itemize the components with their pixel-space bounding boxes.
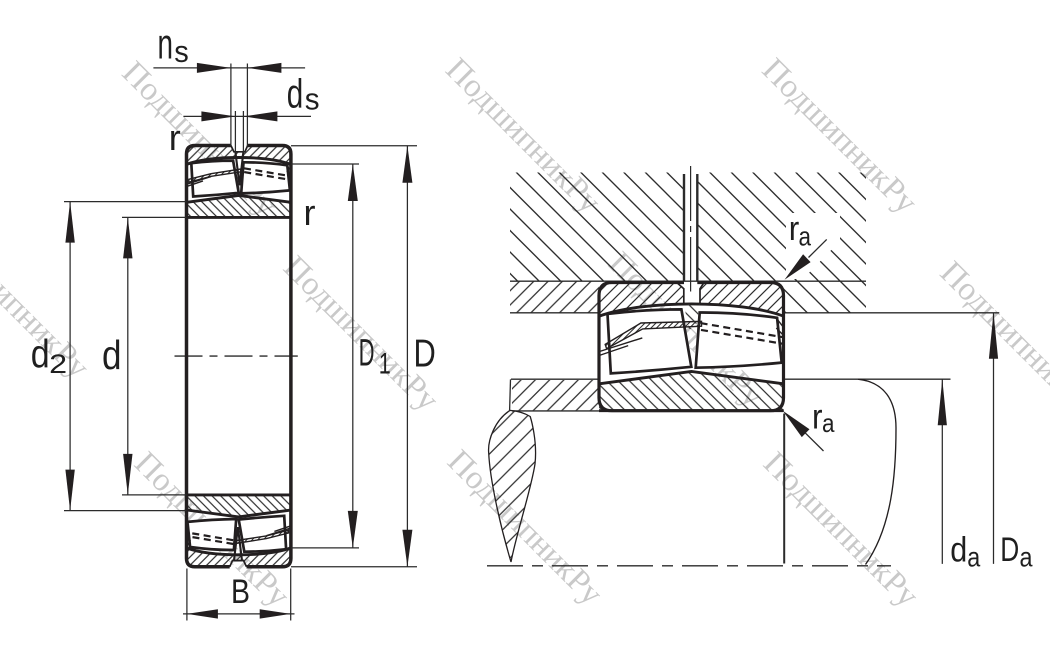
svg-text:d: d xyxy=(102,332,122,378)
svg-text:a: a xyxy=(1020,541,1033,572)
svg-text:1: 1 xyxy=(379,348,391,381)
svg-text:n: n xyxy=(158,21,174,69)
svg-text:2: 2 xyxy=(49,349,67,379)
svg-text:d: d xyxy=(287,71,304,117)
svg-text:B: B xyxy=(231,573,250,611)
svg-text:a: a xyxy=(822,408,835,438)
svg-text:a: a xyxy=(799,221,812,251)
svg-text:D: D xyxy=(1000,531,1019,569)
svg-text:s: s xyxy=(305,82,320,117)
svg-text:s: s xyxy=(174,34,189,69)
svg-text:d: d xyxy=(31,333,50,377)
svg-text:r: r xyxy=(304,192,316,233)
svg-text:r: r xyxy=(169,117,181,158)
svg-text:D: D xyxy=(359,332,375,374)
svg-text:D: D xyxy=(414,332,436,375)
svg-text:d: d xyxy=(950,531,967,570)
svg-text:a: a xyxy=(967,541,980,572)
